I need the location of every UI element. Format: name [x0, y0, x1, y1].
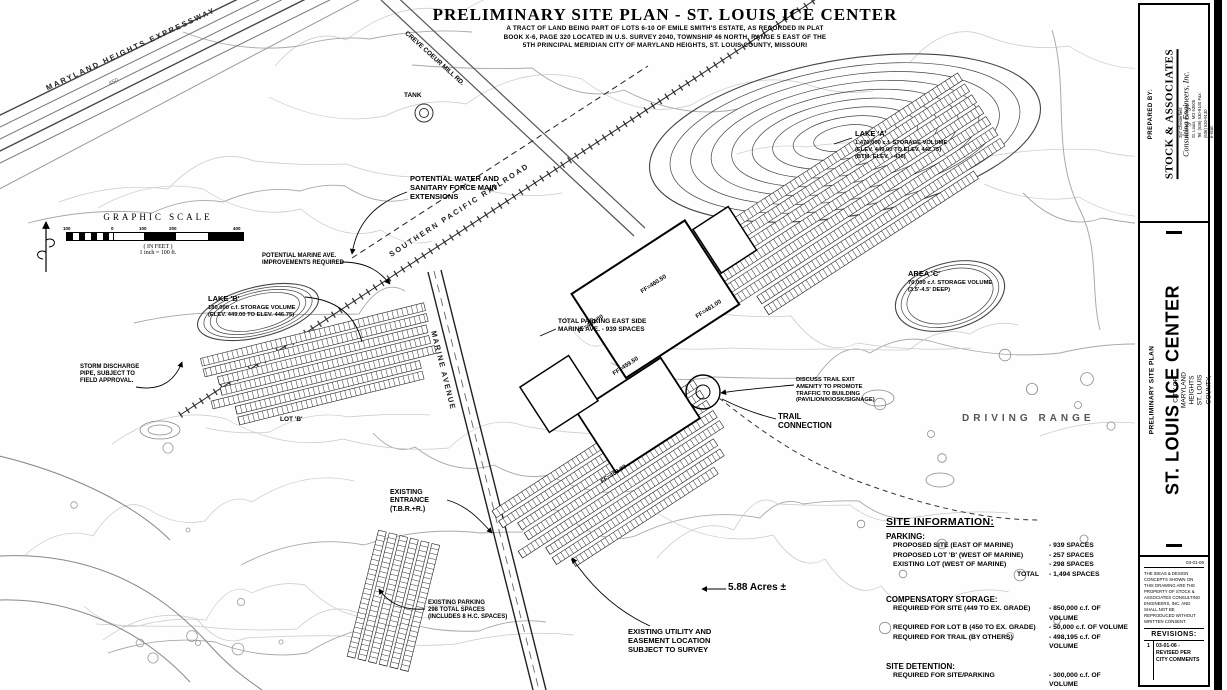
project-type-label: PRELIMINARY SITE PLAN	[1149, 346, 1156, 435]
title-tick-mark	[1166, 231, 1182, 234]
row-label: TOTAL	[893, 570, 1049, 580]
site-info-row: PROPOSED LOT 'B' (WEST OF MARINE)- 257 S…	[886, 551, 1128, 561]
row-label: EXISTING LOT (WEST OF MARINE)	[893, 560, 1049, 570]
scale-ratio: 1 inch = 100 ft.	[58, 250, 258, 256]
firm-logo: STOCK & ASSOCIATES	[1164, 49, 1179, 179]
title-block-prepared-by: PREPARED BY: STOCK & ASSOCIATES Consulti…	[1140, 5, 1208, 223]
lake-b-details: 180,000 c.f. STORAGE VOLUME (ELEV. 449.0…	[208, 305, 296, 319]
page-title: PRELIMINARY SITE PLAN - ST. LOUIS ICE CE…	[430, 5, 900, 25]
site-info-row: REQUIRED FOR SITE (449 TO EX. GRADE)- 85…	[886, 604, 1128, 623]
subtitle-line-1: A TRACT OF LAND BEING PART OF LOTS 6-10 …	[430, 25, 900, 34]
label-existing-utility: EXISTING UTILITY AND EASEMENT LOCATION S…	[628, 628, 711, 655]
prepared-by-label: PREPARED BY:	[1148, 89, 1154, 139]
row-label: REQUIRED FOR SITE/PARKING	[893, 671, 1049, 690]
row-label: REQUIRED FOR TRAIL (BY OTHERS)	[893, 633, 1049, 652]
scale-tick: 200	[169, 226, 177, 231]
site-info-compensatory: COMPENSATORY STORAGE: REQUIRED FOR SITE …	[886, 595, 1128, 652]
revision-row: 1 03-01-06 - REVISED PER CITY COMMENTS	[1144, 641, 1204, 680]
label-area-c: AREA 'C' 70,000 c.f. STORAGE VOLUME (3.5…	[908, 262, 992, 302]
site-plan-sheet: PRELIMINARY SITE PLAN - ST. LOUIS ICE CE…	[0, 0, 1227, 690]
site-info-row: TOTAL- 1,494 SPACES	[886, 570, 1128, 580]
sheet-title-area: PRELIMINARY SITE PLAN - ST. LOUIS ICE CE…	[430, 5, 900, 51]
label-lake-a: LAKE 'A' 1,470,000 c.f. STORAGE VOLUME (…	[855, 122, 947, 169]
plot-date: 03-01-06	[1144, 560, 1204, 568]
site-info-row: EXISTING LOT (WEST OF MARINE)- 298 SPACE…	[886, 560, 1128, 570]
north-arrow-icon	[38, 222, 55, 272]
title-block: PREPARED BY: STOCK & ASSOCIATES Consulti…	[1138, 3, 1210, 687]
site-information: SITE INFORMATION: PARKING: PROPOSED SITE…	[886, 516, 1128, 690]
site-info-row: REQUIRED FOR SITE/PARKING- 300,000 c.f. …	[886, 671, 1128, 690]
site-info-parking: PARKING: PROPOSED SITE (EAST OF MARINE)-…	[886, 532, 1128, 579]
title-block-project: PRELIMINARY SITE PLAN ST. LOUIS ICE CENT…	[1140, 223, 1208, 557]
revisions-header: REVISIONS:	[1144, 628, 1204, 641]
label-lot-b: LOT 'B'	[280, 416, 303, 424]
copyright-note: THE IDEAS & DESIGN CONCEPTS SHOWN ON THI…	[1144, 571, 1204, 625]
marine-avenue-road	[428, 270, 546, 690]
scale-bar-segment	[67, 233, 114, 240]
row-value: - 498,195 c.f. OF VOLUME	[1049, 633, 1128, 652]
site-info-detention: SITE DETENTION: REQUIRED FOR SITE/PARKIN…	[886, 662, 1128, 690]
scale-bar-segment	[145, 233, 176, 240]
area-c-details: 70,000 c.f. STORAGE VOLUME (3.5'-4.5' DE…	[908, 280, 992, 294]
detention-header: SITE DETENTION:	[886, 662, 1128, 671]
label-lake-b: LAKE 'B' 180,000 c.f. STORAGE VOLUME (EL…	[208, 287, 296, 327]
lake-a-details: 1,470,000 c.f. STORAGE VOLUME (ELEV. 449…	[855, 140, 947, 162]
scale-tick: 100	[63, 226, 71, 231]
label-potential-marine: POTENTIAL MARINE AVE. IMPROVEMENTS REQUI…	[262, 253, 344, 267]
row-value: - 50,000 c.f. OF VOLUME	[1049, 623, 1128, 633]
revision-number: 1	[1144, 641, 1154, 680]
area-c-title: AREA 'C'	[908, 269, 940, 278]
title-tick-mark	[1166, 544, 1182, 547]
site-info-header: SITE INFORMATION:	[886, 516, 1128, 528]
sheet-edge-bar	[1214, 0, 1222, 690]
parking-lot-existing-strip	[347, 530, 440, 671]
site-info-row: REQUIRED FOR TRAIL (BY OTHERS)- 498,195 …	[886, 633, 1128, 652]
label-trail-connection: TRAIL CONNECTION	[778, 412, 832, 431]
site-info-row: REQUIRED FOR LOT B (450 TO EX. GRADE)- 5…	[886, 623, 1128, 633]
subtitle-line-3: 5TH PRINCIPAL MERIDIAN CITY OF MARYLAND …	[430, 42, 900, 51]
label-potential-water: POTENTIAL WATER AND SANITARY FORCE MAIN …	[410, 175, 499, 202]
label-tank: TANK	[404, 92, 422, 100]
scale-tick: 400	[233, 226, 241, 231]
row-value: - 300,000 c.f. OF VOLUME	[1049, 671, 1128, 690]
scale-bar-segment	[209, 233, 243, 240]
scale-bar-segment	[176, 233, 209, 240]
graphic-scale-title: GRAPHIC SCALE	[58, 212, 258, 222]
label-storm-discharge: STORM DISCHARGE PIPE, SUBJECT TO FIELD A…	[80, 364, 139, 385]
row-value: - 257 SPACES	[1049, 551, 1128, 561]
row-label: PROPOSED SITE (EAST OF MARINE)	[893, 541, 1049, 551]
row-label: REQUIRED FOR LOT B (450 TO EX. GRADE)	[893, 623, 1049, 633]
label-acres: 5.88 Acres ±	[728, 582, 786, 594]
scale-bar: 100 0 100 200 400	[66, 232, 244, 241]
lake-b-title: LAKE 'B'	[208, 294, 239, 303]
row-value: - 1,494 SPACES	[1049, 570, 1128, 580]
label-driving-range: DRIVING RANGE	[962, 413, 1095, 425]
revision-entry: 03-01-06 - REVISED PER CITY COMMENTS	[1154, 641, 1204, 680]
scale-bar-segment	[114, 233, 145, 240]
lake-a-title: LAKE 'A'	[855, 129, 886, 138]
label-existing-entrance: EXISTING ENTRANCE (T.B.R.+R.)	[390, 489, 429, 514]
parking-header: PARKING:	[886, 532, 1128, 541]
local-roads	[0, 455, 262, 690]
label-existing-parking: EXISTING PARKING 298 TOTAL SPACES (INCLU…	[428, 600, 507, 621]
scale-tick: 0	[111, 226, 114, 231]
creek-line	[1052, 30, 1100, 330]
row-value: - 850,000 c.f. OF VOLUME	[1049, 604, 1128, 623]
site-info-row: PROPOSED SITE (EAST OF MARINE)- 939 SPAC…	[886, 541, 1128, 551]
scale-tick: 100	[139, 226, 147, 231]
title-block-revisions: 03-01-06 THE IDEAS & DESIGN CONCEPTS SHO…	[1140, 557, 1208, 683]
row-value: - 939 SPACES	[1049, 541, 1128, 551]
utility-extension-line	[352, 66, 648, 258]
drawing-area: PRELIMINARY SITE PLAN - ST. LOUIS ICE CE…	[0, 0, 1135, 690]
row-value: - 298 SPACES	[1049, 560, 1128, 570]
row-label: REQUIRED FOR SITE (449 TO EX. GRADE)	[893, 604, 1049, 623]
label-discuss-trail: DISCUSS TRAIL EXIT AMENITY TO PROMOTE TR…	[796, 377, 875, 404]
subtitle-line-2: BOOK X-6, PAGE 320 LOCATED IN U.S. SURVE…	[430, 34, 900, 43]
row-label: PROPOSED LOT 'B' (WEST OF MARINE)	[893, 551, 1049, 561]
graphic-scale: GRAPHIC SCALE 100 0 100 200 400 ( IN FEE…	[58, 212, 258, 256]
buildings	[493, 196, 817, 491]
water-tank	[415, 104, 433, 122]
compensatory-header: COMPENSATORY STORAGE:	[886, 595, 1128, 604]
